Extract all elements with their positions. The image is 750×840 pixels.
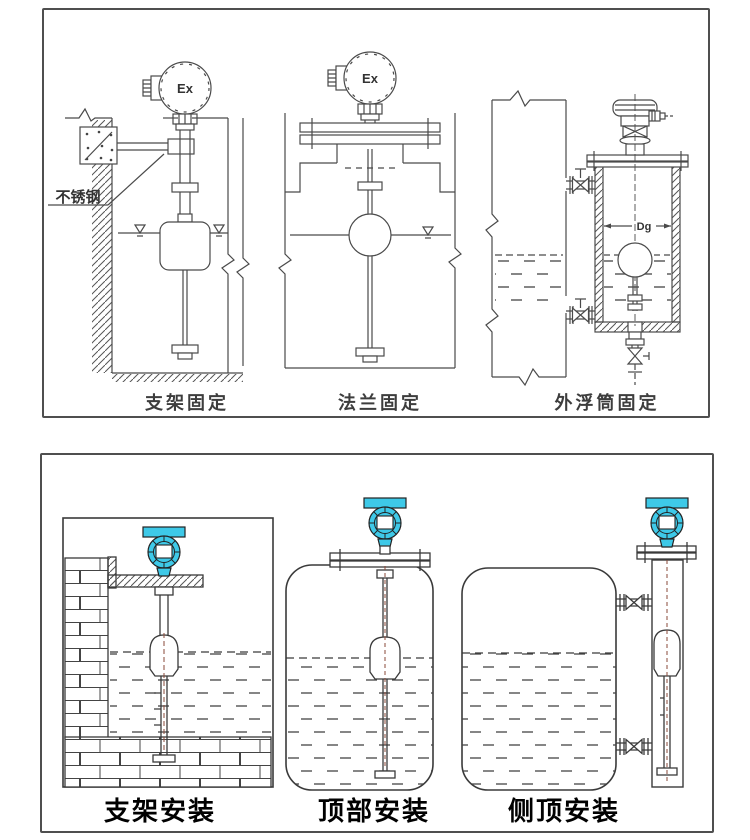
caption-external-cage-fixing: 外浮筒固定 xyxy=(555,394,660,414)
transmitter-head xyxy=(364,498,406,547)
side-top-install-drawing xyxy=(462,498,696,790)
ex-marking-2: Ex xyxy=(362,71,379,86)
ex-proof-head xyxy=(328,52,396,120)
mounting-shelf xyxy=(108,575,203,587)
float-ball xyxy=(618,243,652,277)
transmitter-head xyxy=(646,498,688,547)
isolation-valve-lower xyxy=(573,308,589,322)
connection-valve-lower xyxy=(626,740,642,754)
bracket-fixing-drawing xyxy=(48,62,249,382)
bottom-panel-drawing xyxy=(42,455,712,831)
caption-top-install: 顶部安装 xyxy=(318,797,430,826)
stainless-steel-note: 不锈钢 xyxy=(55,186,100,207)
dg-dimension-label: Dg xyxy=(637,221,652,233)
ex-marking-1: Ex xyxy=(177,81,194,96)
top-panel-drawing: Ex Ex Dg xyxy=(44,10,708,416)
bottom-panel-install-methods: 支架安装 顶部安装 侧顶安装 xyxy=(40,453,714,833)
connection-valve-upper xyxy=(626,596,642,610)
drain-valve xyxy=(628,348,642,364)
flange-fixing-drawing xyxy=(279,52,461,368)
page: { "colors": { "line": "#4a4a4a", "transm… xyxy=(0,0,750,840)
level-mark xyxy=(423,227,433,238)
float-ball xyxy=(349,214,391,256)
top-panel-fixing-methods: Ex Ex Dg 不锈钢 支架固定 法兰固定 外浮筒固定 xyxy=(42,8,710,418)
top-install-drawing xyxy=(286,498,433,790)
caption-bracket-install: 支架安装 xyxy=(104,797,216,826)
caption-flange-fixing: 法兰固定 xyxy=(338,394,422,414)
caption-bracket-fixing: 支架固定 xyxy=(145,394,229,414)
level-mark xyxy=(135,225,145,236)
bracket-install-drawing xyxy=(63,518,273,787)
float-body xyxy=(160,222,210,270)
external-cage-fixing-drawing xyxy=(486,91,688,385)
level-mark xyxy=(214,225,224,236)
isolation-valve-upper xyxy=(573,178,589,192)
brick-wall xyxy=(65,558,108,738)
ex-proof-head xyxy=(143,62,211,130)
caption-side-top-install: 侧顶安装 xyxy=(508,797,620,826)
